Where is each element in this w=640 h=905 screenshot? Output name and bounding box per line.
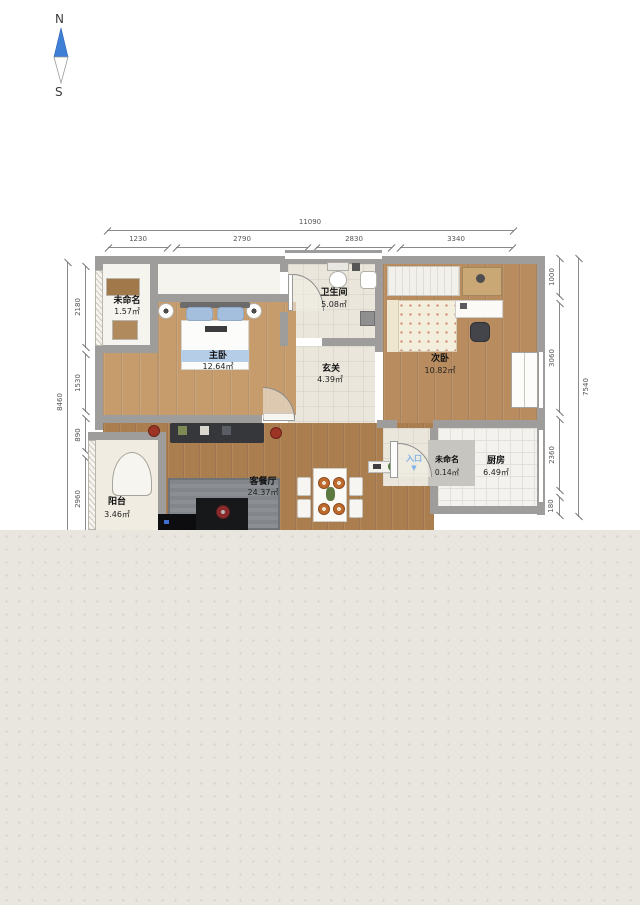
- dim-right-seg-line: [559, 419, 560, 491]
- trash-bin: [352, 263, 360, 271]
- dim-label: 3060: [548, 349, 556, 367]
- dim-label: 1000: [548, 268, 556, 286]
- dim-label: 2960: [74, 490, 82, 508]
- dim-label: 1230: [129, 235, 147, 243]
- dim-right-seg-line: [559, 497, 560, 516]
- compass-south-label: S: [55, 85, 63, 99]
- window-sketch: [88, 440, 96, 530]
- plate: [333, 477, 345, 489]
- chair: [349, 477, 363, 496]
- bed-tray: [205, 326, 227, 332]
- chair: [470, 322, 490, 342]
- room-name-foyer: 玄关: [322, 361, 340, 374]
- dresser-item: [476, 274, 485, 283]
- room-name-second-bedroom: 次卧: [431, 351, 449, 364]
- room-area-balcony: 3.46㎡: [104, 509, 130, 520]
- bed-pillow: [217, 307, 244, 321]
- sink: [360, 271, 377, 289]
- dim-label: 8460: [56, 393, 64, 411]
- room-name-shaft: 未命名: [435, 454, 459, 465]
- wall: [95, 345, 158, 353]
- bed-pillow: [186, 307, 213, 321]
- room-area-second-bedroom: 10.82㎡: [425, 365, 456, 376]
- room-area-closet: 1.57㎡: [114, 306, 140, 317]
- compass-needle-icon: [50, 27, 72, 85]
- plate: [318, 503, 330, 515]
- tv-logo: [164, 520, 169, 524]
- window: [285, 250, 382, 262]
- sofa-pillow: [222, 426, 231, 435]
- bay-window: [511, 352, 538, 408]
- dim-label: 2790: [233, 235, 251, 243]
- wall: [150, 264, 158, 353]
- north-strip-floor: [158, 264, 280, 294]
- wall: [280, 338, 288, 346]
- sideboard-item: [373, 464, 381, 469]
- wall: [377, 420, 397, 428]
- dim-label: 2360: [548, 446, 556, 464]
- wall: [103, 415, 262, 423]
- chair: [349, 499, 363, 518]
- sofa-pillow: [178, 426, 187, 435]
- wall: [280, 264, 288, 272]
- dim-label: 180: [547, 499, 555, 512]
- nightstand-lamp: [158, 303, 174, 319]
- dim-label: 11090: [299, 218, 321, 226]
- dim-label: 2830: [345, 235, 363, 243]
- dim-label: 7540: [582, 378, 590, 396]
- window: [537, 430, 545, 502]
- compass-north-label: N: [55, 12, 64, 26]
- room-name-closet: 未命名: [113, 293, 140, 306]
- room-area-shaft: 0.14㎡: [435, 467, 459, 478]
- plant-flower: [148, 425, 160, 437]
- room-name-kitchen: 厨房: [487, 453, 505, 466]
- dim-top-total-line: [107, 230, 514, 231]
- canvas-background: [0, 530, 640, 905]
- room-area-foyer: 4.39㎡: [317, 374, 343, 385]
- dim-left-seg-line: [85, 458, 86, 540]
- dim-top-seg-line: [176, 247, 308, 248]
- window: [537, 352, 545, 408]
- dim-label: 890: [74, 428, 82, 441]
- room-area-master-bedroom: 12.64㎡: [203, 361, 234, 372]
- dim-label: 2180: [74, 298, 82, 316]
- room-name-master-bedroom: 主卧: [209, 348, 227, 361]
- dim-top-seg-line: [316, 247, 392, 248]
- table-plant: [326, 487, 335, 501]
- room-area-living-dining: 24.37㎡: [248, 487, 279, 498]
- bowl: [216, 505, 230, 519]
- entrance-arrow-icon: ▼: [411, 464, 416, 472]
- dim-left-total-line: [67, 262, 68, 543]
- chair: [297, 499, 311, 518]
- wall: [322, 338, 383, 346]
- bed-pillow: [387, 300, 399, 352]
- toilet-tank: [327, 262, 349, 271]
- window-sketch: [95, 270, 103, 346]
- wall: [430, 506, 545, 514]
- shower-drain: [360, 311, 375, 326]
- chair: [297, 477, 311, 496]
- room-area-kitchen: 6.49㎡: [483, 467, 509, 478]
- dim-left-seg-line: [85, 354, 86, 412]
- dim-left-seg-line: [85, 266, 86, 348]
- room-name-balcony: 阳台: [108, 494, 126, 507]
- plate: [333, 503, 345, 515]
- dim-label: 1530: [74, 374, 82, 392]
- plant-flower: [270, 427, 282, 439]
- entry-door: [390, 441, 398, 478]
- dim-right-seg-line: [559, 303, 560, 413]
- dim-label: 3340: [447, 235, 465, 243]
- closet-cabinet: [112, 320, 138, 340]
- room-area-bathroom: 5.08㎡: [321, 299, 347, 310]
- dim-top-seg-line: [108, 247, 168, 248]
- dim-top-seg-line: [400, 247, 513, 248]
- wardrobe: [387, 266, 460, 296]
- entrance-label: 入口: [406, 453, 422, 464]
- room-name-bathroom: 卫生间: [320, 285, 347, 298]
- floor-plan-canvas: N S 11090 1230 2790 2830 3340 8460 2180 …: [0, 0, 640, 905]
- room-name-living-dining: 客餐厅: [249, 474, 276, 487]
- desk-item: [460, 303, 467, 309]
- dim-left-seg-line: [85, 418, 86, 452]
- dim-right-seg-line: [559, 258, 560, 297]
- wall: [375, 256, 383, 352]
- master-bedroom-floor: [103, 353, 158, 415]
- wall: [158, 294, 288, 302]
- wall: [433, 420, 545, 428]
- dim-right-total-line: [578, 258, 579, 517]
- sofa-pillow: [200, 426, 209, 435]
